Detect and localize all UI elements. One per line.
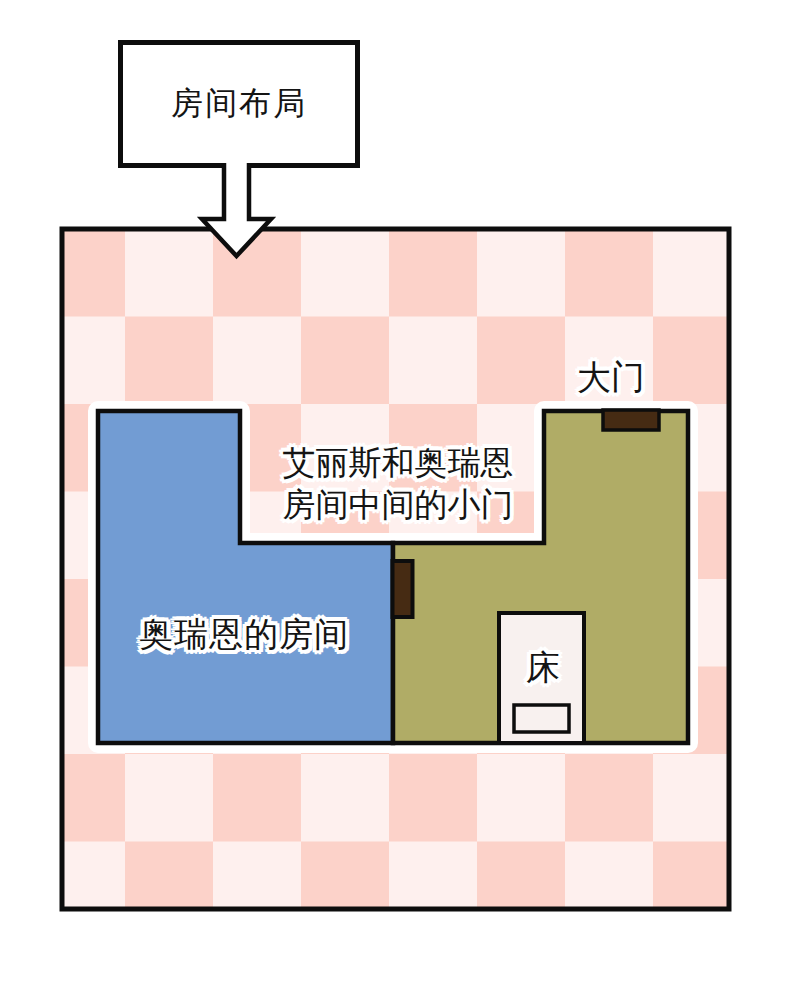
- main-door-label: 大门: [577, 355, 645, 401]
- orien-room-label: 奥瑞恩的房间: [139, 612, 349, 658]
- bed-pillow: [514, 705, 569, 732]
- middle-door-label: 艾丽斯和奥瑞恩 房间中间的小门: [248, 442, 548, 526]
- main-door: [603, 410, 659, 430]
- bed-label: 床: [526, 645, 560, 691]
- comic-panel: 房间布局 大门 艾丽斯和奥瑞恩 房间中间的小门: [0, 0, 800, 1005]
- middle-door-label-line2: 房间中间的小门: [248, 484, 548, 526]
- middle-door: [393, 561, 413, 617]
- middle-door-label-line1: 艾丽斯和奥瑞恩: [248, 442, 548, 484]
